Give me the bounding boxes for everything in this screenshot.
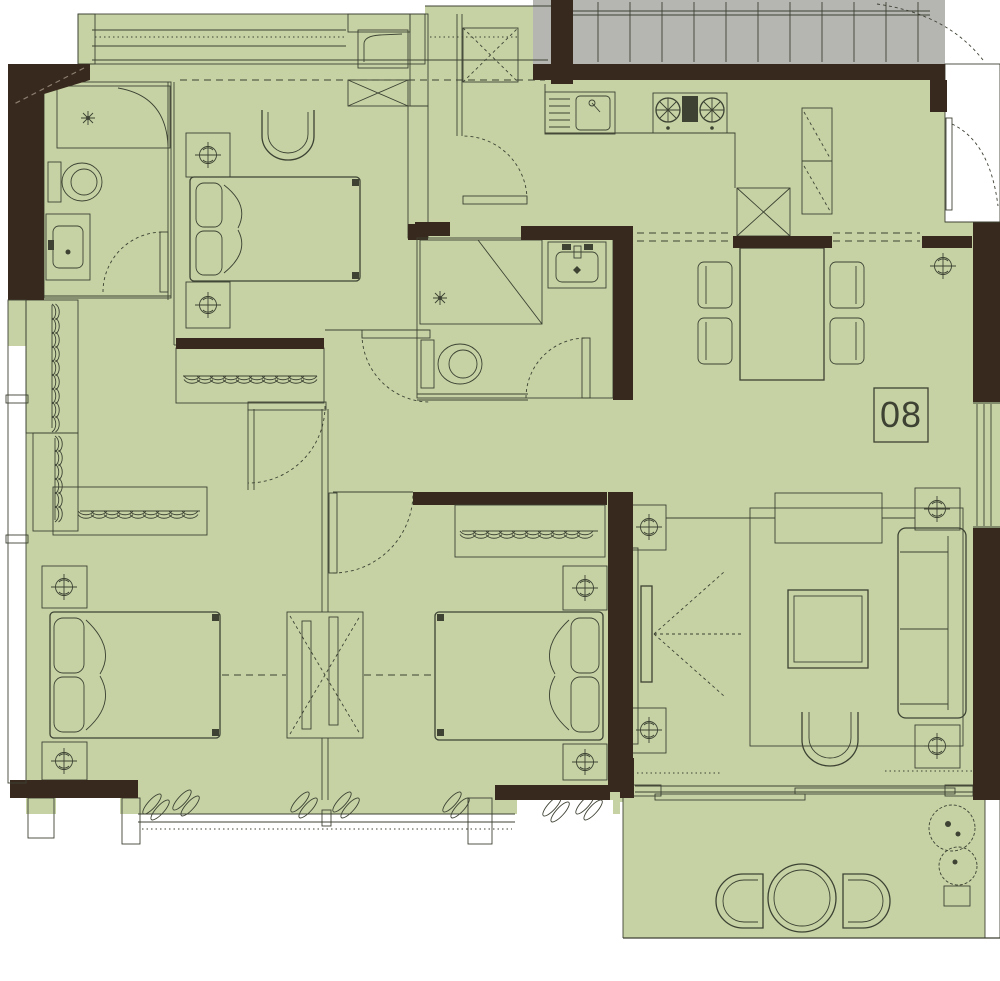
left-bay-strip bbox=[6, 300, 28, 783]
entry-corridor bbox=[945, 64, 1000, 222]
balcony-rail-pier bbox=[985, 798, 1000, 938]
floor-plan-page: 08 bbox=[0, 0, 1000, 981]
stairwell bbox=[533, 0, 983, 64]
floor-plan-drawing: 08 bbox=[0, 0, 1000, 981]
unit-number-badge: 08 bbox=[874, 388, 928, 442]
stair-landing bbox=[533, 0, 945, 64]
unit-number-label: 08 bbox=[880, 394, 922, 435]
